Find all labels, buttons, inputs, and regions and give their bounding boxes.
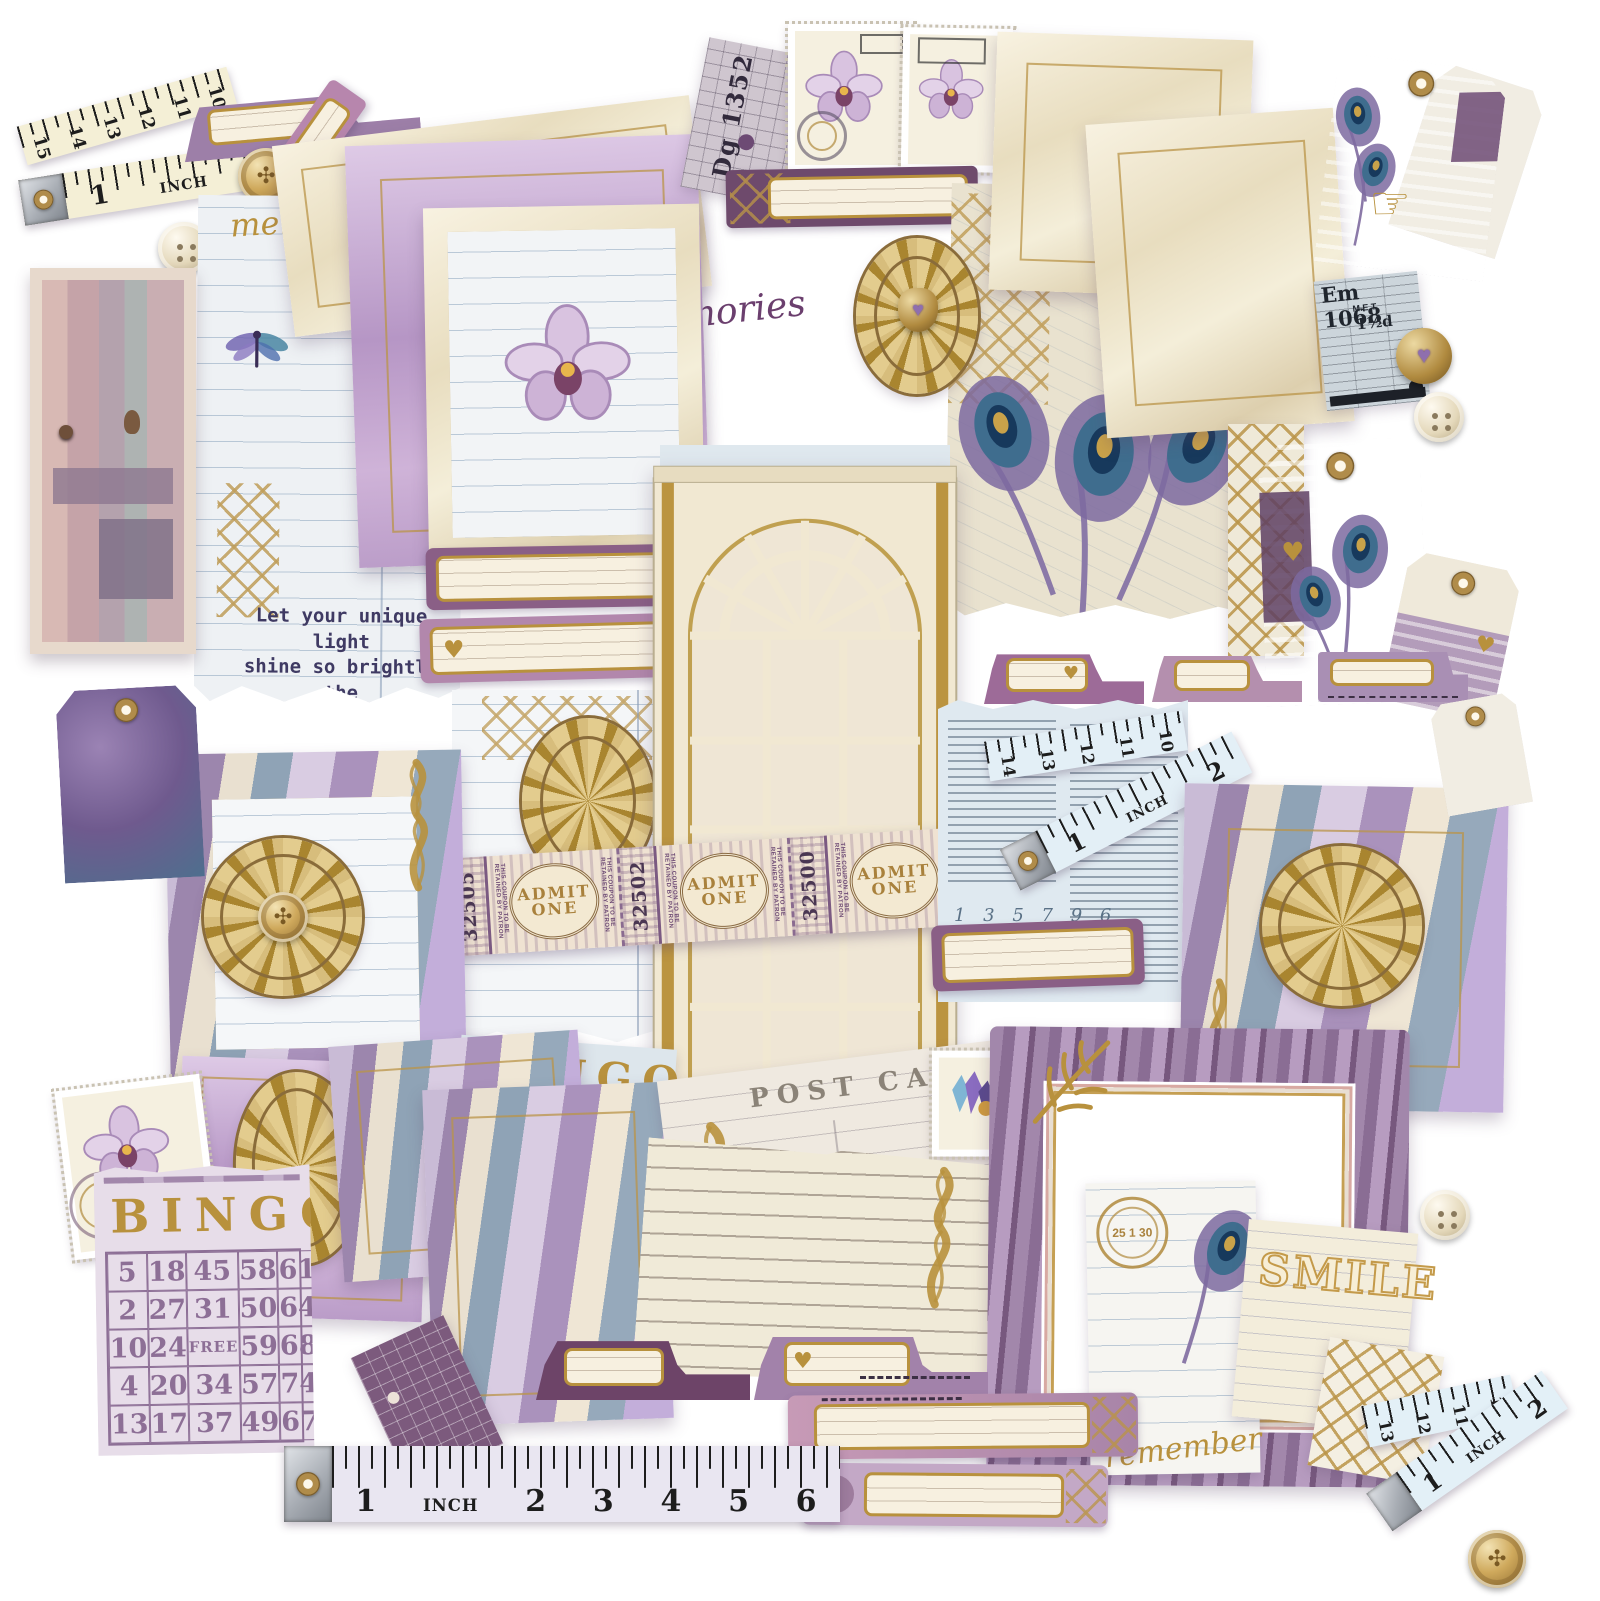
- admit-line: ONE: [871, 879, 919, 898]
- door-knocker: [124, 410, 140, 434]
- bingo-cell: 37: [189, 1403, 241, 1442]
- quatrefoil-gold-patch: [217, 483, 280, 618]
- ruler-bottom: 1INCH23456: [284, 1446, 840, 1522]
- tape-number: 12: [1076, 741, 1098, 766]
- gold-damask-flourish: [383, 756, 451, 897]
- tape-number: 6: [796, 1484, 817, 1519]
- admit-line: ONE: [531, 900, 579, 919]
- bar-label-window: ♥: [429, 621, 676, 675]
- tab-label-right-stitched: [1318, 652, 1468, 702]
- tape-number: 1: [89, 179, 112, 211]
- stamp-overprint: [860, 34, 904, 54]
- bingo-cell: 24: [148, 1328, 188, 1367]
- stitch-line: [860, 1376, 970, 1379]
- admit-line: ONE: [701, 889, 749, 908]
- stitch-line: [822, 1397, 962, 1401]
- ticket-number: Dg 1352: [706, 51, 759, 181]
- door-plank: [53, 468, 172, 504]
- bar-label-right: [931, 918, 1145, 991]
- heart-locket-right: ♥: [1396, 328, 1452, 384]
- tape-number: 4: [660, 1484, 681, 1519]
- ticket-fare: 1½d: [1355, 312, 1393, 334]
- ticket-punch-dot: [386, 1390, 402, 1406]
- ticket-stub: 32502: [619, 846, 662, 946]
- admit-one-oval: ADMITONE: [507, 860, 601, 942]
- label-lattice-end: [1092, 1396, 1136, 1452]
- orchid-artwork: [497, 299, 639, 441]
- bingo-cell: FREE: [187, 1327, 239, 1366]
- coupon-text: THIS COUPON TO BE RETAINED BY PATRON: [831, 842, 852, 925]
- bingo-cell: 67: [280, 1402, 320, 1441]
- orchid-stamp-1: [788, 24, 914, 172]
- coupon-text: THIS COUPON TO BE RETAINED BY PATRON: [597, 856, 618, 939]
- pointing-hand-icon: ☞: [1369, 175, 1411, 230]
- tape-number: 12: [1412, 1410, 1435, 1436]
- tape-number: 14: [997, 753, 1019, 778]
- bingo-cell: 20: [149, 1366, 189, 1405]
- bar-label-center-heart: ♥: [419, 613, 687, 684]
- ticket-main: THIS COUPON TO BE RETAINED BY PATRONADMI…: [486, 848, 622, 954]
- bar-label-window: [814, 1402, 1090, 1450]
- admit-ticket-segment: 32505THIS COUPON TO BE RETAINED BY PATRO…: [449, 848, 625, 956]
- coupon-text: THIS COUPON TO BE RETAINED BY PATRON: [767, 846, 788, 929]
- tape-number: 1: [1063, 826, 1091, 859]
- bingo-cell: 5: [107, 1253, 147, 1292]
- bingo-cell: 57: [240, 1365, 280, 1404]
- bingo-cell: 58: [238, 1251, 278, 1290]
- gold-postmark: 25 1 30: [1096, 1196, 1169, 1269]
- admit-one-oval: ADMITONE: [848, 840, 942, 922]
- tape-number: 3: [593, 1484, 614, 1519]
- door-knob: [59, 425, 73, 439]
- bingo-cell: 10: [108, 1329, 148, 1368]
- tag-grommet: [1407, 69, 1436, 98]
- bar-label-window: [941, 927, 1135, 984]
- bingo-cell: 4: [109, 1367, 149, 1406]
- bingo-cell: 45: [186, 1251, 238, 1290]
- bingo-cell: 34: [188, 1365, 240, 1404]
- stamp-postmark: [797, 111, 847, 161]
- inch-label: INCH: [423, 1496, 479, 1519]
- arched-window: [652, 438, 958, 1134]
- tab-label-mid-heart: ♥: [984, 650, 1144, 704]
- stitch-line: [1328, 696, 1458, 698]
- gold-button-center-left: [258, 892, 308, 942]
- gold-circle-frame-right: [1262, 846, 1422, 1006]
- bingo-cell: 31: [187, 1289, 239, 1328]
- ticket-stub: 32500: [790, 836, 833, 936]
- tape-number: 11: [1116, 735, 1138, 760]
- tape-grommet: [296, 1472, 320, 1496]
- dragonfly-icon: [217, 323, 297, 374]
- tab-label-window: ♥: [784, 1342, 910, 1386]
- tape-number: 5: [728, 1484, 749, 1519]
- tab-label-window: ♥: [1006, 658, 1088, 692]
- bar-label-bottom-2: [802, 1463, 1109, 1528]
- bingo-cell: 49: [240, 1403, 280, 1442]
- gold-fern-icon: [1023, 1032, 1120, 1129]
- tab-label-window: [1174, 660, 1250, 691]
- tape-number: 13: [1374, 1418, 1397, 1444]
- bingo-cell: 74: [279, 1364, 319, 1403]
- bingo-cell: 68: [279, 1326, 319, 1365]
- heart-gem: ♥: [912, 299, 924, 322]
- bingo-cell: 50: [238, 1289, 278, 1328]
- tape-number: 2: [1522, 1392, 1552, 1425]
- heart-charm-center: ♥: [898, 288, 938, 332]
- weathered-door: [30, 268, 196, 654]
- label-lattice-end: [1066, 1469, 1106, 1523]
- tab-label-window: [564, 1348, 664, 1386]
- tape-number: 1: [355, 1484, 376, 1519]
- cream-frame-top-right-2: [1085, 108, 1354, 439]
- tape-number: 15: [29, 134, 55, 162]
- tag-purple-patch: [1451, 92, 1506, 162]
- admit-ticket-segment: 32500THIS COUPON TO BE RETAINED BY PATRO…: [790, 828, 963, 936]
- gold-heart-icon: ♥: [1063, 663, 1079, 684]
- peacock-tag-top-right: ☞: [1314, 52, 1508, 281]
- bingo-cell: 18: [147, 1252, 187, 1291]
- tape-number: 14: [64, 124, 90, 152]
- tag-grommet: [114, 697, 139, 722]
- bingo-cell: 13: [110, 1405, 150, 1444]
- bingo-header-band: [104, 1174, 300, 1183]
- door-plank: [99, 519, 173, 599]
- gold-button-bottom-right: [1468, 1530, 1526, 1588]
- bingo-cell: 59: [239, 1327, 279, 1366]
- bingo-grid: 5184558612273150641024FREE59684203457741…: [105, 1248, 304, 1445]
- gold-heart-icon: ♥: [443, 635, 465, 664]
- tape-number: 13: [1037, 747, 1059, 772]
- coupon-text: THIS COUPON TO BE RETAINED BY PATRON: [491, 863, 512, 946]
- tape-number: 1: [1417, 1465, 1447, 1498]
- watercolor-tag-left: [55, 684, 205, 883]
- bar-label-center: [425, 544, 682, 610]
- ticket-number: 32502: [626, 860, 652, 932]
- stamp-overprint: [918, 37, 986, 64]
- postmark-date: 25 1 30: [1112, 1225, 1152, 1240]
- admit-one-oval: ADMITONE: [677, 850, 771, 932]
- tape-number: 11: [168, 94, 194, 122]
- lavender-bingo-card: BINGO 5184558612273150641024FREE59684203…: [94, 1164, 315, 1456]
- tab-label-window: [1330, 659, 1434, 686]
- ticket-main: THIS COUPON TO BE RETAINED BY PATRONADMI…: [656, 838, 792, 944]
- tag-grommet: [1449, 569, 1477, 597]
- gold-heart-icon: ♥: [793, 1349, 813, 1374]
- tag-grommet: [1464, 705, 1487, 728]
- heart-gem: ♥: [1417, 342, 1431, 370]
- gold-damask-flourish: [889, 1161, 989, 1317]
- tape-number: 2: [525, 1484, 546, 1519]
- bar-label-window: [864, 1472, 1064, 1518]
- bar-label-bottom-1: [788, 1392, 1139, 1459]
- cream-button-bottom-right: [1420, 1190, 1470, 1240]
- scrapbook-ephemera-collage: 151413121110 1INCH2 memories Let your un…: [0, 0, 1600, 1601]
- bingo-cell: 17: [149, 1404, 189, 1443]
- quatrefoil-label-top: [726, 166, 979, 228]
- cream-button-right-top: [1414, 392, 1464, 442]
- bingo-cell: 2: [108, 1291, 148, 1330]
- coupon-text: THIS COUPON TO BE RETAINED BY PATRON: [661, 853, 682, 936]
- bingo-cell: 27: [147, 1290, 187, 1329]
- fine-print-rows: [210, 433, 378, 478]
- admit-ticket-segment: 32502THIS COUPON TO BE RETAINED BY PATRO…: [619, 838, 795, 946]
- smile-text: SMILE: [1256, 1244, 1440, 1311]
- bar-label-window: [436, 552, 673, 602]
- tape-number: 13: [99, 114, 125, 142]
- tape-number: 12: [133, 104, 159, 132]
- ticket-number: 32500: [796, 850, 822, 922]
- tag-grommet: [1326, 452, 1355, 481]
- bar-label-window: [768, 174, 969, 219]
- tape-number: 10: [1155, 728, 1177, 753]
